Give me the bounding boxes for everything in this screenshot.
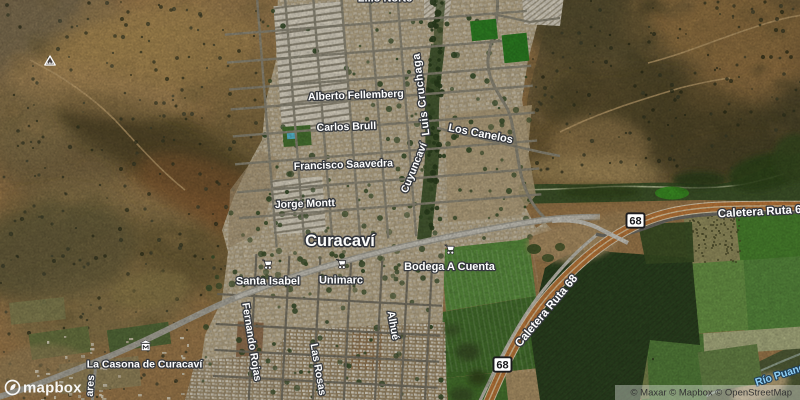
svg-text:mapbox: mapbox <box>23 380 82 397</box>
svg-text:La Casona de Curacaví: La Casona de Curacaví <box>87 359 204 371</box>
svg-text:© Maxar © Mapbox © OpenStreetM: © Maxar © Mapbox © OpenStreetMap <box>631 388 792 399</box>
svg-text:Bodega A Cuenta: Bodega A Cuenta <box>404 261 496 273</box>
svg-text:Jorge Montt: Jorge Montt <box>275 197 336 211</box>
svg-text:68: 68 <box>496 360 508 372</box>
svg-text:Santa Isabel: Santa Isabel <box>236 276 300 288</box>
svg-text:68: 68 <box>629 216 641 228</box>
svg-text:ares: ares <box>84 374 97 397</box>
svg-text:Lillo Norte: Lillo Norte <box>358 0 412 5</box>
svg-text:Carlos Brull: Carlos Brull <box>316 120 376 134</box>
svg-text:Unimarc: Unimarc <box>319 275 363 287</box>
svg-text:Curacaví: Curacaví <box>305 232 376 250</box>
